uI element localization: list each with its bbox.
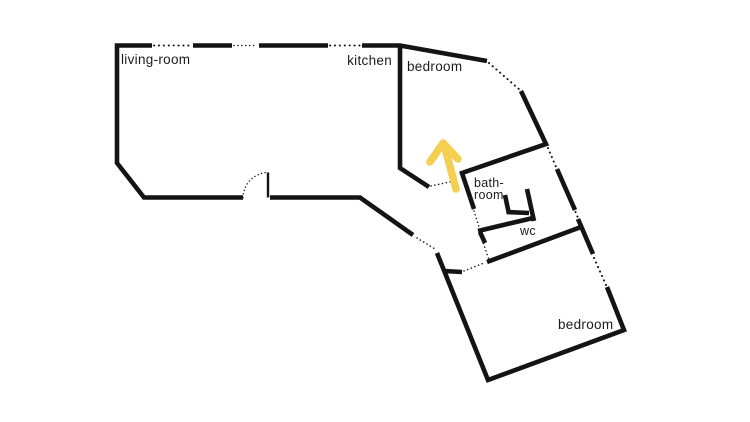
bedroom-bottom-label: bedroom — [558, 317, 613, 332]
up-arrow-icon — [430, 143, 458, 189]
room-labels: living-room kitchen bedroom bath- room w… — [121, 52, 613, 332]
door-swing-arc — [243, 173, 268, 198]
wc-label: wc — [519, 224, 536, 238]
floor-plan-page: living-room kitchen bedroom bath- room w… — [0, 0, 750, 422]
window-dotted-walls — [154, 46, 606, 286]
kitchen-label: kitchen — [347, 53, 392, 68]
solid-walls — [117, 46, 624, 381]
bathroom-label-line2: room — [474, 188, 504, 202]
bedroom-top-label: bedroom — [407, 59, 462, 74]
living-room-label: living-room — [121, 52, 190, 67]
floor-plan-canvas: living-room kitchen bedroom bath- room w… — [0, 0, 750, 422]
